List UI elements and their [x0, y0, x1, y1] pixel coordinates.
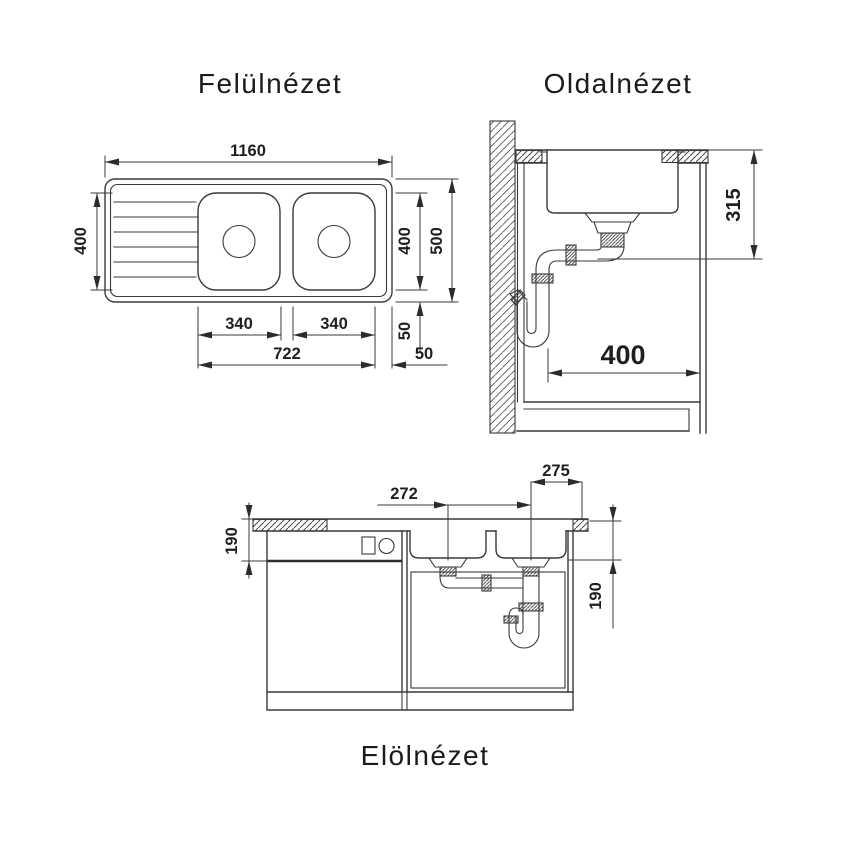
right-drain-hole: [318, 226, 350, 258]
dim-label-190-left: 190: [223, 527, 241, 555]
dim-drainer-depth: 400: [72, 193, 112, 290]
dim-overall-depth: 500: [428, 179, 456, 302]
cabinet-base-front: [267, 692, 573, 710]
drainboard-ribs: [114, 202, 198, 277]
dim-left-bowl-width: 340: [198, 315, 281, 339]
dim-drain-to-edge: 275: [531, 462, 582, 486]
cabinet-back-panel: [518, 163, 525, 402]
left-bowl: [198, 193, 280, 290]
wall-section: [490, 121, 515, 433]
bowl-section: [547, 150, 678, 213]
countertop-front: [253, 519, 588, 531]
dim-label-315: 315: [723, 188, 745, 221]
dim-left-bowl-depth: 190: [223, 503, 268, 578]
dim-side-offset: 50: [392, 345, 447, 369]
dim-bowl-zone-depth: 400: [396, 193, 424, 290]
cabinet-side-panel: [700, 163, 706, 433]
sink-outer-edge: [105, 179, 392, 302]
dim-label-50-horizontal: 50: [415, 345, 433, 363]
dim-label-1160: 1160: [230, 142, 266, 160]
appliance-button-square: [362, 537, 375, 554]
appliance-button-round: [379, 539, 394, 554]
dim-label-722: 722: [273, 345, 301, 363]
left-drain-hole: [223, 226, 255, 258]
sink-inner-rim: [111, 185, 387, 297]
drain-assembly-side: [510, 213, 640, 347]
right-bowl: [293, 193, 375, 290]
dim-label-50-vertical: 50: [396, 322, 414, 340]
top-view-title: Felülnézet: [198, 68, 342, 99]
front-view: Elölnézet: [223, 462, 621, 771]
side-view: Oldalnézet: [490, 68, 762, 433]
dim-right-bowl-width: 340: [293, 315, 375, 339]
dim-label-340-left: 340: [225, 315, 253, 333]
dim-label-272: 272: [390, 485, 418, 503]
dim-label-500: 500: [428, 227, 446, 255]
dim-label-right-400: 400: [396, 227, 414, 255]
dim-label-190-right: 190: [587, 582, 605, 610]
technical-drawing-page: Felülnézet 1160 400: [0, 0, 850, 850]
dim-bowls-span: 722: [198, 345, 375, 369]
front-view-title: Elölnézet: [361, 740, 490, 771]
sink-cabinet: [407, 531, 573, 692]
sink-installation-diagram: Felülnézet 1160 400: [0, 0, 850, 850]
cabinet-base: [517, 402, 700, 431]
dim-cabinet-clearance: 400: [548, 340, 700, 382]
dim-rear-offset: 50: [396, 302, 424, 351]
top-view: Felülnézet 1160 400: [72, 68, 458, 369]
dim-label-400-side: 400: [600, 340, 645, 370]
dim-drain-spacing: 272: [378, 485, 531, 509]
dim-overall-width: 1160: [105, 142, 392, 177]
countertop-section: [515, 150, 708, 163]
dim-label-left-400: 400: [72, 227, 90, 255]
left-cabinet: [267, 531, 402, 692]
dim-label-340-right: 340: [320, 315, 348, 333]
dim-label-275: 275: [542, 462, 570, 480]
side-view-title: Oldalnézet: [544, 68, 693, 99]
front-extension-lines: [448, 482, 582, 560]
